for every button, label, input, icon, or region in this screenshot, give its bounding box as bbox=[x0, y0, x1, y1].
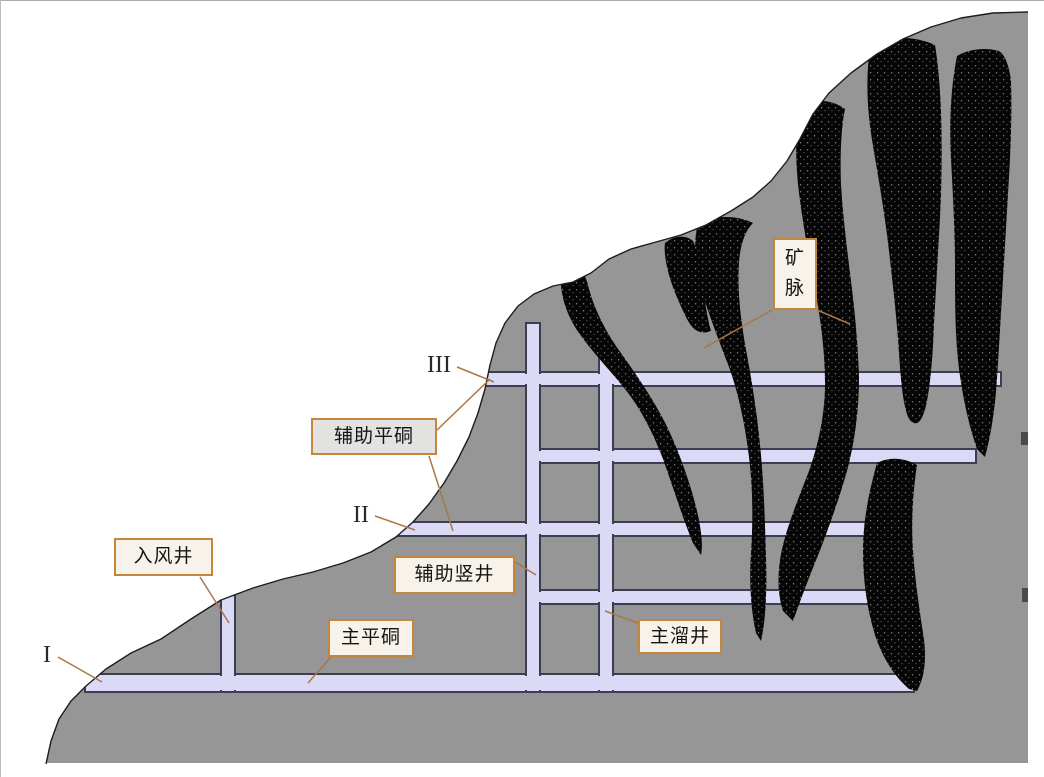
auxiliary-shaft-label: 辅助竖井 bbox=[394, 556, 515, 594]
mining-diagram: 矿脉 辅助平硐 入风井 辅助竖井 主平硐 主溜井 III II I bbox=[0, 0, 1044, 777]
air-intake-shaft-label: 入风井 bbox=[114, 538, 213, 576]
level-1-leader bbox=[58, 657, 102, 682]
right-edge-tick-lower bbox=[1022, 588, 1030, 602]
ore-vein-label: 矿脉 bbox=[773, 238, 817, 310]
level-1-marker: I bbox=[43, 642, 51, 669]
level-2-leader bbox=[375, 516, 415, 530]
auxiliary-adit-label: 辅助平硐 bbox=[311, 418, 437, 455]
right-edge-tick-upper bbox=[1021, 432, 1029, 445]
main-adit-label: 主平硐 bbox=[328, 619, 414, 657]
level-2-marker: II bbox=[353, 502, 369, 529]
main-ore-pass-label: 主溜井 bbox=[638, 619, 722, 654]
diagram-canvas bbox=[1, 1, 1044, 777]
level-3-marker: III bbox=[427, 352, 451, 379]
